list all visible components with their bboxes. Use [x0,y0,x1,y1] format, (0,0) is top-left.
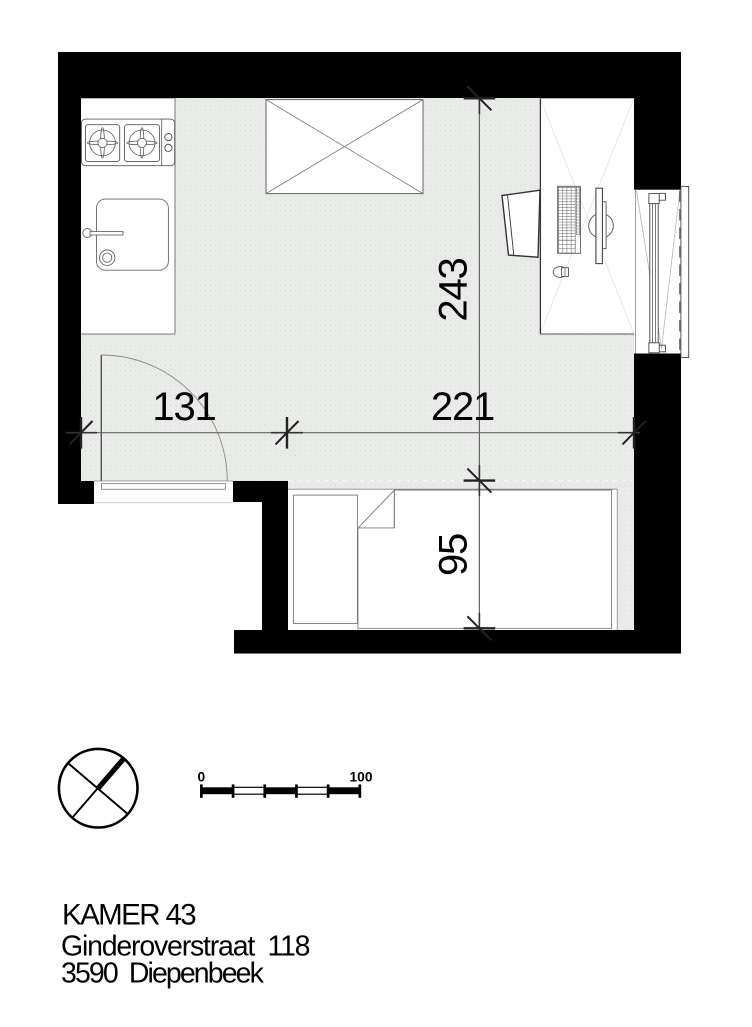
svg-text:KAMER 43: KAMER 43 [62,899,196,932]
svg-text:243: 243 [432,258,476,321]
svg-text:221: 221 [431,385,494,429]
svg-text:100: 100 [349,770,372,785]
svg-text:131: 131 [152,385,215,429]
svg-text:3590 Diepenbeek: 3590 Diepenbeek [61,958,265,990]
svg-text:95: 95 [432,534,476,576]
svg-text:0: 0 [197,770,205,785]
